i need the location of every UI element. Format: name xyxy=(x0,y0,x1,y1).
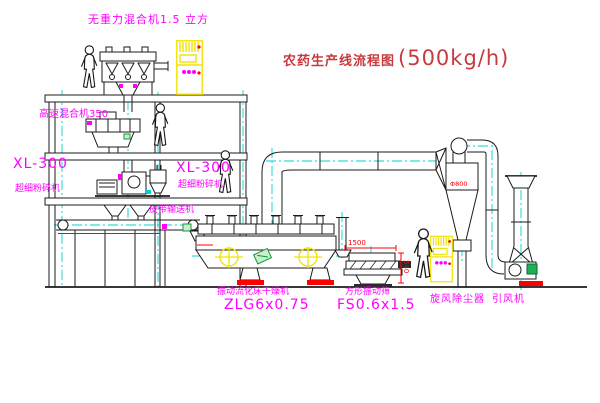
cyclone-label: 旋风除尘器 xyxy=(430,295,485,305)
cyclone-diameter-dimension: Φ800 xyxy=(450,181,468,188)
high-speed-mixer-label: 高速混合机350 xyxy=(39,110,108,120)
belt-conveyor-label: 皮带输送机 xyxy=(149,206,194,215)
title-capacity: (500kg/h) xyxy=(398,46,509,70)
pulverizer-mid-model-label: XL-300 xyxy=(176,161,231,175)
pulverizer-left-model-label: XL-300 xyxy=(13,157,68,171)
gravity-mixer-label: 无重力混合机1.5 立方 xyxy=(88,14,209,25)
dryer-name-label: 振动流化床干燥机 xyxy=(217,288,289,297)
square-vibrating-screen xyxy=(344,245,411,287)
screen-model-label: FS0.6x1.5 xyxy=(337,298,416,312)
gravity-mixer xyxy=(100,47,168,95)
person-figure-4 xyxy=(414,229,432,277)
pulverizer-mid-name-label: 超细粉碎机 xyxy=(178,181,223,190)
person-figure-1 xyxy=(81,46,96,88)
dryer-model-label: ZLG6x0.75 xyxy=(224,298,310,312)
drawing-title: 农药生产线流程图 (500kg/h) xyxy=(283,46,509,70)
control-cabinet-upper xyxy=(177,41,202,94)
control-cabinet-ground xyxy=(431,236,453,281)
diagram-stage: 农药生产线流程图 (500kg/h) 无重力混合机1.5 立方 高速混合机350… xyxy=(0,0,600,403)
exhaust-duct xyxy=(262,152,436,224)
screen-height-dimension: 540 xyxy=(402,260,409,273)
cyclone-separator xyxy=(436,138,506,287)
induced-draft-fan xyxy=(505,246,543,286)
screen-feed-pipe xyxy=(335,218,351,258)
title-text: 农药生产线流程图 xyxy=(283,50,395,69)
fluid-bed-dryer xyxy=(196,216,336,286)
screen-name-label: 方形振动筛 xyxy=(345,288,390,297)
fan-label: 引风机 xyxy=(492,295,525,305)
pulverizer-left-name-label: 超细粉碎机 xyxy=(15,185,60,194)
belt-conveyor xyxy=(56,220,206,241)
screen-length-dimension: 1500 xyxy=(348,240,366,247)
